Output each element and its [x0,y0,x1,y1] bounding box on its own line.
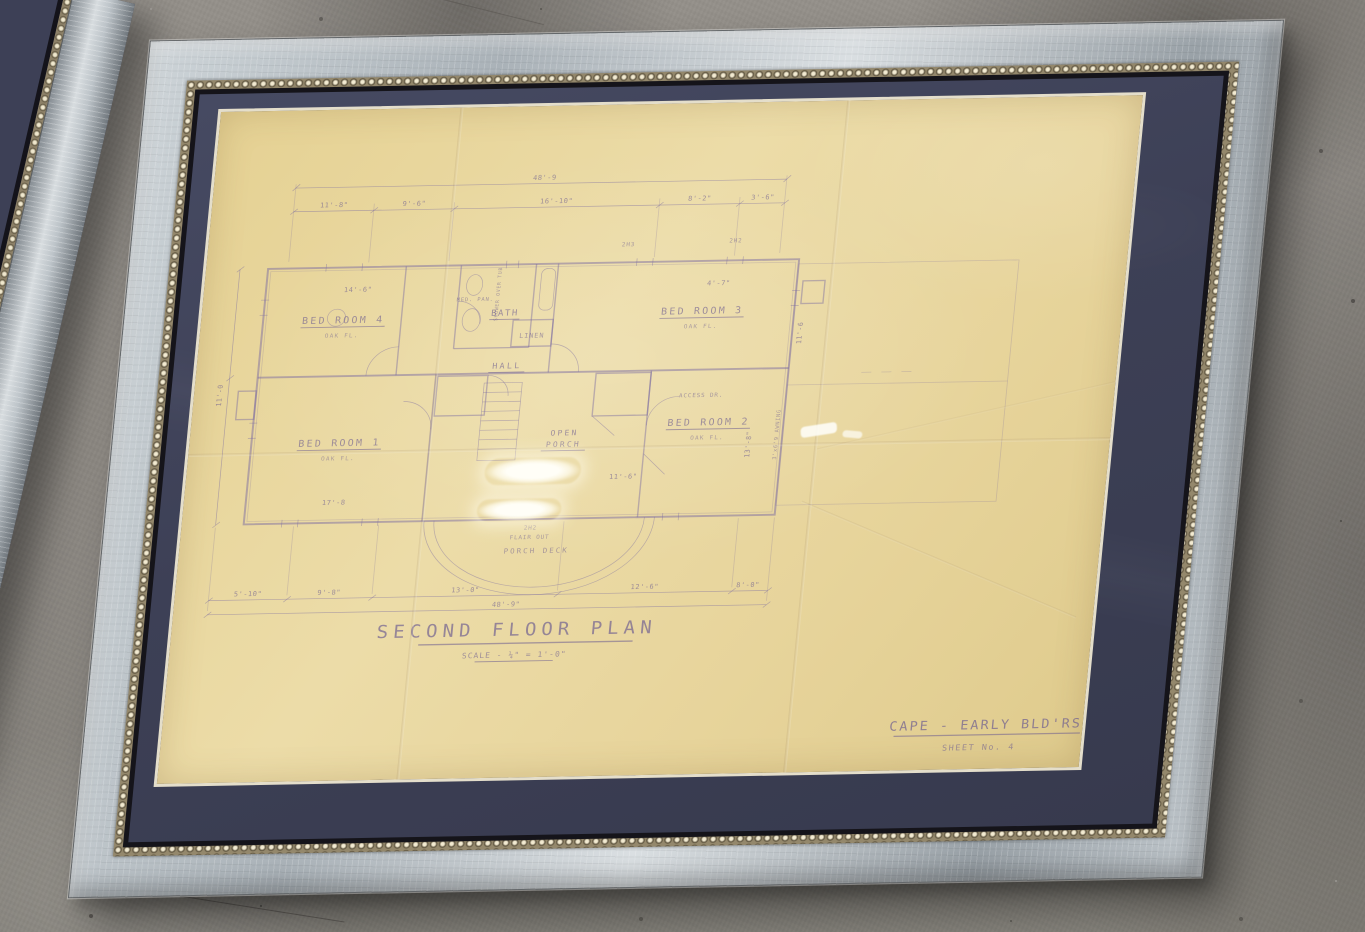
top-dimension-lines: 48'-9 11'-8" 9'-6" 16'-10" 8'-2" 3'-6" [286,169,792,263]
drawing-title-group: SECOND FLOOR PLAN SCALE - ¼" = 1'-0" [374,618,658,664]
bedroom4-floor-note: OAK FL. [324,333,358,339]
door-swings [361,297,689,431]
flair-out-note: FLAIR OUT [509,535,549,542]
dim-top-seg-4: 8'-2" [688,195,712,203]
drawing-title: SECOND FLOOR PLAN [376,618,658,643]
dim-bottom-seg-1: 5'-10" [233,590,262,598]
floor-crack [398,0,544,25]
dim-bottom-seg-2: 9'-8" [317,589,341,597]
glass-shadow-gap: 48'-9 11'-8" 9'-6" 16'-10" 8'-2" 3'-6" [123,71,1229,848]
dim-top-seg-5: 3'-6" [751,193,775,201]
window-mark-2h2-bottom: 2H2 [523,526,537,532]
firm-name: CAPE - EARLY BLD'RS. [888,716,1092,734]
frame-bead-trim: 48'-9 11'-8" 9'-6" 16'-10" 8'-2" 3'-6" [113,61,1239,856]
picture-frame-molding: 48'-9 11'-8" 9'-6" 16'-10" 8'-2" 3'-6" [68,20,1284,899]
bedroom3-label: BED ROOM 3 [660,305,743,317]
framed-blueprint: 48'-9 11'-8" 9'-6" 16'-10" 8'-2" 3'-6" [68,20,1284,899]
bedroom3-floor-note: OAK FL. [683,324,717,330]
open-porch-label-line2: PORCH [545,440,581,449]
dim-bedroom3: 4'-7" [707,279,731,287]
glass-glare-reflection [483,457,582,486]
mat-bevel: 48'-9 11'-8" 9'-6" 16'-10" 8'-2" 3'-6" [154,92,1147,787]
roof-extension-outline [776,260,1019,505]
dim-right-height: 11'-6 [795,322,805,344]
linen-label: LINEN [519,332,545,340]
bottom-dimension-lines: 5'-10" 9'-8" 13'-0" 12'-6" 8'-0" 48'-9" [204,517,779,617]
bedroom1-floor-note: OAK FL. [321,456,355,462]
dim-bedroom2-depth: 13'-8" [743,431,754,458]
dim-bottom-seg-3: 13'-0" [451,586,480,594]
hall-label: HALL [492,360,522,370]
bedroom1-label: BED ROOM 1 [298,438,381,450]
drawing-scale-note: SCALE - ¼" = 1'-0" [461,650,567,661]
glass-glare-reflection [476,498,562,522]
dim-bottom-seg-4: 12'-6" [630,583,659,591]
bedroom4-label: BED ROOM 4 [302,315,385,327]
bedroom2-label: BED ROOM 2 [667,417,750,429]
open-porch-label-line1: OPEN [550,428,579,437]
porch-deck-note: PORCH DECK [503,546,569,556]
window-mark-2h3: 2H3 [622,242,636,248]
bedroom2-floor-note: OAK FL. [690,435,724,441]
window-mark-2h2: 2H2 [729,238,743,244]
photo-scene: { "scene": { "setting": "two framed vint… [0,0,1365,932]
room-labels: BED ROOM 4 OAK FL. BED ROOM 3 OAK FL. BE… [288,304,762,463]
dim-top-seg-2: 9'-6" [402,200,426,208]
mat-board: 48'-9 11'-8" 9'-6" 16'-10" 8'-2" 3'-6" [128,76,1223,843]
dim-top-seg-1: 11'-8" [320,201,349,209]
blueprint-paper: 48'-9 11'-8" 9'-6" 16'-10" 8'-2" 3'-6" [157,95,1143,784]
access-door-note: ACCESS DR. [679,393,724,400]
dim-overall-bottom: 48'-9" [492,600,521,608]
dim-bottom-seg-5: 8'-0" [736,581,760,589]
dim-top-seg-3: 16'-10" [540,197,574,205]
stairs [477,382,522,460]
dim-bedroom1-width: 17'-8 [322,499,346,507]
title-block: CAPE - EARLY BLD'RS. SHEET No. 4 [887,716,1093,753]
sheet-number: SHEET No. 4 [942,742,1016,753]
dim-bedroom4: 14'-6" [344,286,373,294]
dim-overall-top: 48'-9 [533,174,557,182]
dim-bedroom2-width: 11'-6" [609,473,638,481]
medicine-cabinet-note: MED. PAN. [456,297,494,303]
dim-left-height: 11'-0 [215,384,225,406]
floor-plan-drawing: 48'-9 11'-8" 9'-6" 16'-10" 8'-2" 3'-6" [157,95,1143,784]
